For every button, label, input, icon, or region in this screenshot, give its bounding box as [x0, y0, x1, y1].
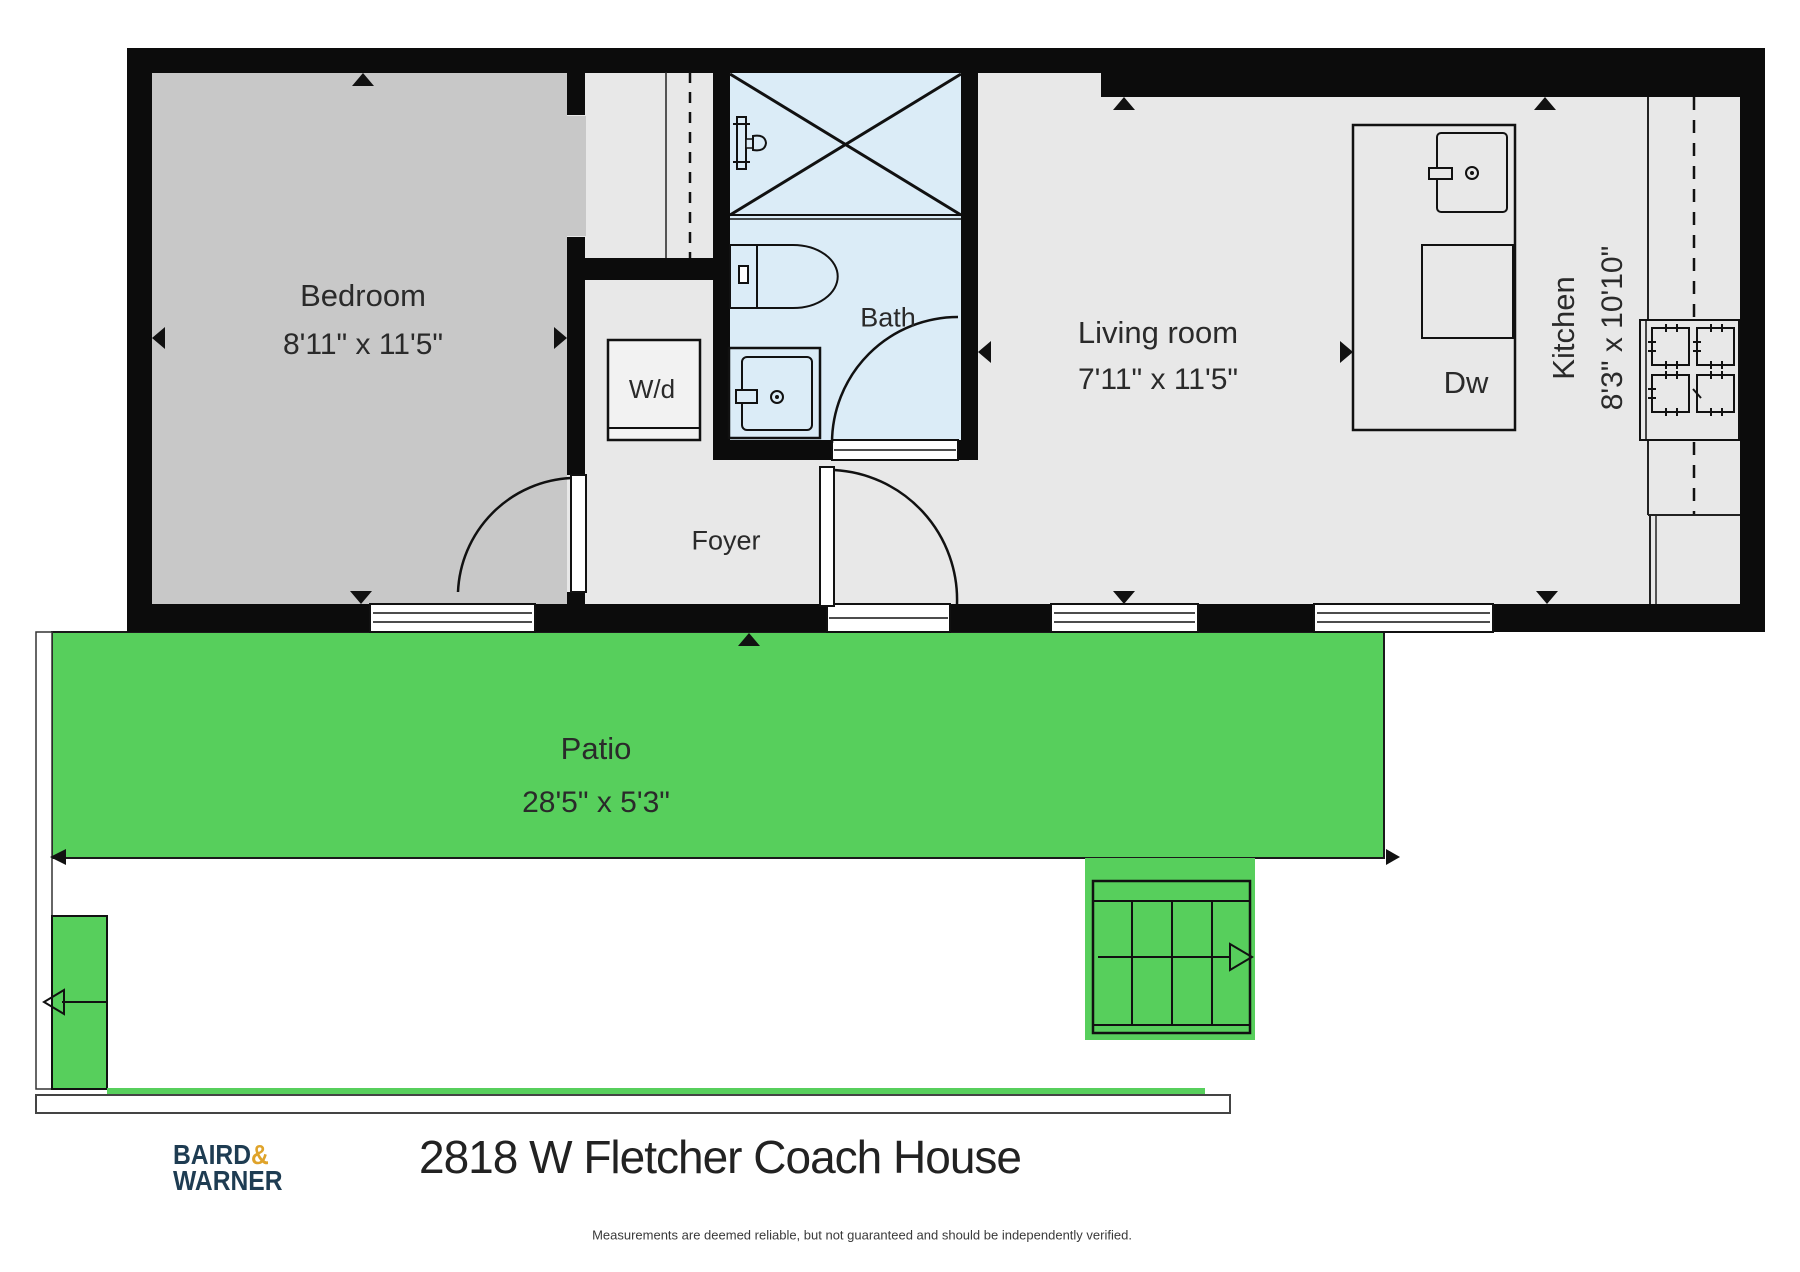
- floorplan-page: Bedroom 8'11" x 11'5" Bath Foyer W/d Liv…: [0, 0, 1800, 1272]
- logo-word2: WARNER: [173, 1168, 283, 1194]
- page-title: 2818 W Fletcher Coach House: [419, 1130, 1021, 1184]
- kitchen-island: [1353, 125, 1515, 430]
- bedroom-label: Bedroom: [300, 278, 426, 314]
- floorplan-drawing: [0, 0, 1800, 1272]
- baird-warner-logo: BAIRD& WARNER: [173, 1142, 283, 1194]
- bedroom-dims: 8'11" x 11'5": [283, 328, 443, 363]
- washer-dryer-label: W/d: [629, 375, 675, 405]
- closet-bottom-wall: [585, 258, 730, 280]
- foyer-label: Foyer: [691, 525, 760, 556]
- top-wall-left: [127, 48, 1101, 73]
- sidewalk: [36, 1095, 1230, 1113]
- patio-left-walk: [36, 632, 52, 1089]
- closet-opening: [566, 116, 586, 236]
- disclaimer-text: Measurements are deemed reliable, but no…: [592, 1228, 1132, 1243]
- living-window-1: [1051, 604, 1198, 632]
- bath-label: Bath: [860, 302, 916, 333]
- right-wall: [1740, 48, 1765, 632]
- dishwasher-label: Dw: [1444, 365, 1489, 401]
- living-room-dims: 7'11" x 11'5": [1078, 363, 1238, 398]
- bathroom-sink-icon: [729, 348, 820, 438]
- top-wall-right: [1101, 48, 1765, 97]
- stove-icon: [1640, 320, 1739, 440]
- patio-label: Patio: [561, 731, 632, 767]
- kitchen-dims: 8'3" x 10'10": [1589, 246, 1637, 411]
- bath-left-wall: [713, 72, 730, 460]
- island-sink-icon: [1429, 133, 1507, 212]
- kitchen-label-group: Kitchen 8'3" x 10'10": [1539, 246, 1637, 411]
- stairs-icon: [1085, 858, 1255, 1040]
- toilet-icon: [730, 245, 838, 308]
- living-room-label: Living room: [1078, 315, 1238, 351]
- patio-right-marker-icon: [1386, 849, 1400, 865]
- patio-area: [36, 632, 1400, 1113]
- living-window-2: [1314, 604, 1493, 632]
- kitchen-label: Kitchen: [1539, 246, 1589, 411]
- bedroom-window: [370, 604, 535, 632]
- patio-dims: 28'5" x 5'3": [522, 786, 670, 821]
- bath-right-wall: [961, 72, 978, 460]
- left-wall: [127, 48, 152, 632]
